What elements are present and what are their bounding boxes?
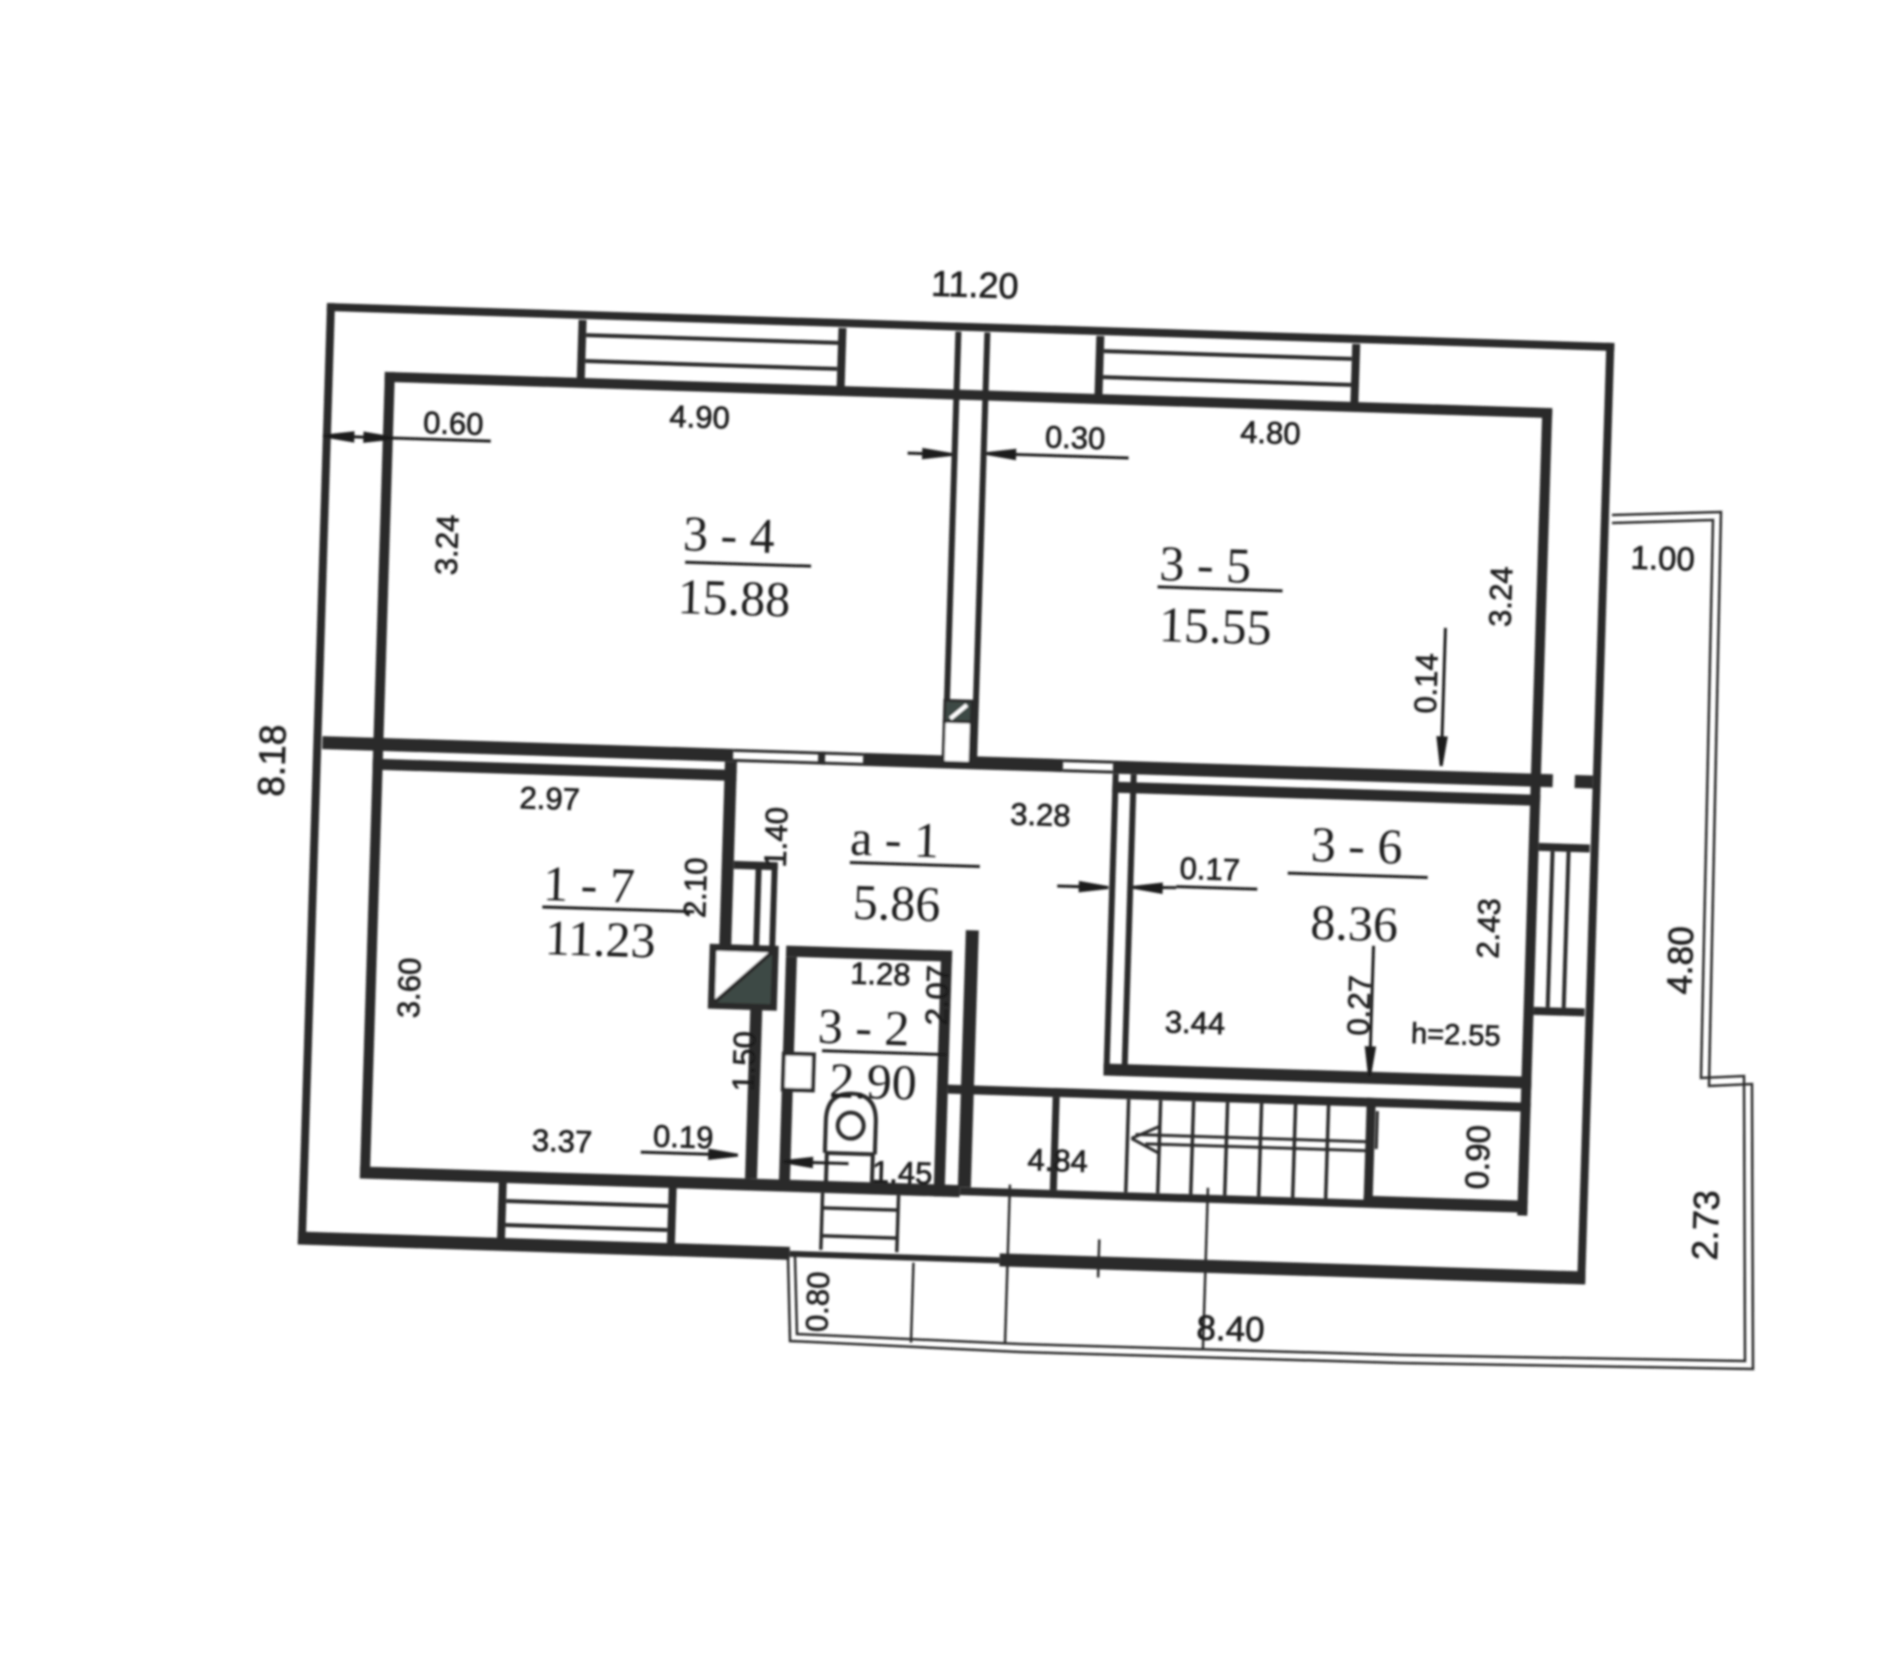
svg-text:0.30: 0.30 [1044, 419, 1105, 456]
svg-text:0.19: 0.19 [653, 1119, 714, 1156]
svg-text:3 - 6: 3 - 6 [1310, 816, 1403, 875]
svg-text:0.60: 0.60 [423, 405, 484, 442]
svg-text:3.24: 3.24 [1483, 566, 1520, 627]
svg-text:3.28: 3.28 [1010, 796, 1071, 833]
svg-text:4.80: 4.80 [1240, 414, 1301, 451]
svg-text:15.88: 15.88 [677, 568, 791, 627]
svg-text:3 - 5: 3 - 5 [1159, 535, 1252, 594]
svg-text:8.36: 8.36 [1310, 894, 1399, 953]
svg-text:1.45: 1.45 [872, 1154, 933, 1191]
svg-text:1 - 7: 1 - 7 [542, 855, 635, 914]
svg-text:2.07: 2.07 [919, 965, 956, 1026]
svg-text:4.84: 4.84 [1027, 1142, 1088, 1179]
svg-text:2.73: 2.73 [1684, 1190, 1727, 1261]
svg-text:15.55: 15.55 [1158, 596, 1272, 655]
svg-text:1.28: 1.28 [850, 956, 911, 993]
svg-text:4.80: 4.80 [1660, 926, 1701, 995]
svg-text:3 - 2: 3 - 2 [817, 998, 910, 1057]
svg-text:2.43: 2.43 [1470, 898, 1507, 959]
svg-text:3 - 4: 3 - 4 [682, 505, 775, 564]
svg-text:3.37: 3.37 [531, 1123, 592, 1160]
svg-text:3.24: 3.24 [429, 514, 466, 575]
svg-text:0.17: 0.17 [1179, 851, 1240, 888]
svg-text:0.80: 0.80 [799, 1271, 836, 1332]
svg-text:3.44: 3.44 [1164, 1004, 1225, 1041]
svg-text:1.50: 1.50 [726, 1031, 763, 1092]
svg-text:3.60: 3.60 [391, 957, 428, 1018]
svg-text:0.90: 0.90 [1458, 1124, 1497, 1189]
svg-text:5.86: 5.86 [852, 874, 941, 933]
svg-text:0.27: 0.27 [1341, 975, 1378, 1036]
svg-text:4.90: 4.90 [669, 399, 730, 436]
svg-text:0.14: 0.14 [1408, 653, 1445, 714]
svg-text:2.90: 2.90 [828, 1052, 917, 1111]
svg-text:a - 1: a - 1 [849, 810, 940, 869]
svg-text:h=2.55: h=2.55 [1411, 1018, 1501, 1053]
svg-text:8.40: 8.40 [1196, 1309, 1265, 1350]
svg-text:11.23: 11.23 [544, 909, 656, 968]
svg-text:1.00: 1.00 [1630, 539, 1695, 578]
svg-text:2.97: 2.97 [519, 780, 580, 817]
svg-text:1.40: 1.40 [758, 807, 795, 868]
svg-text:11.20: 11.20 [931, 263, 1020, 307]
svg-text:8.18: 8.18 [251, 724, 294, 797]
svg-text:2.10: 2.10 [677, 857, 714, 918]
